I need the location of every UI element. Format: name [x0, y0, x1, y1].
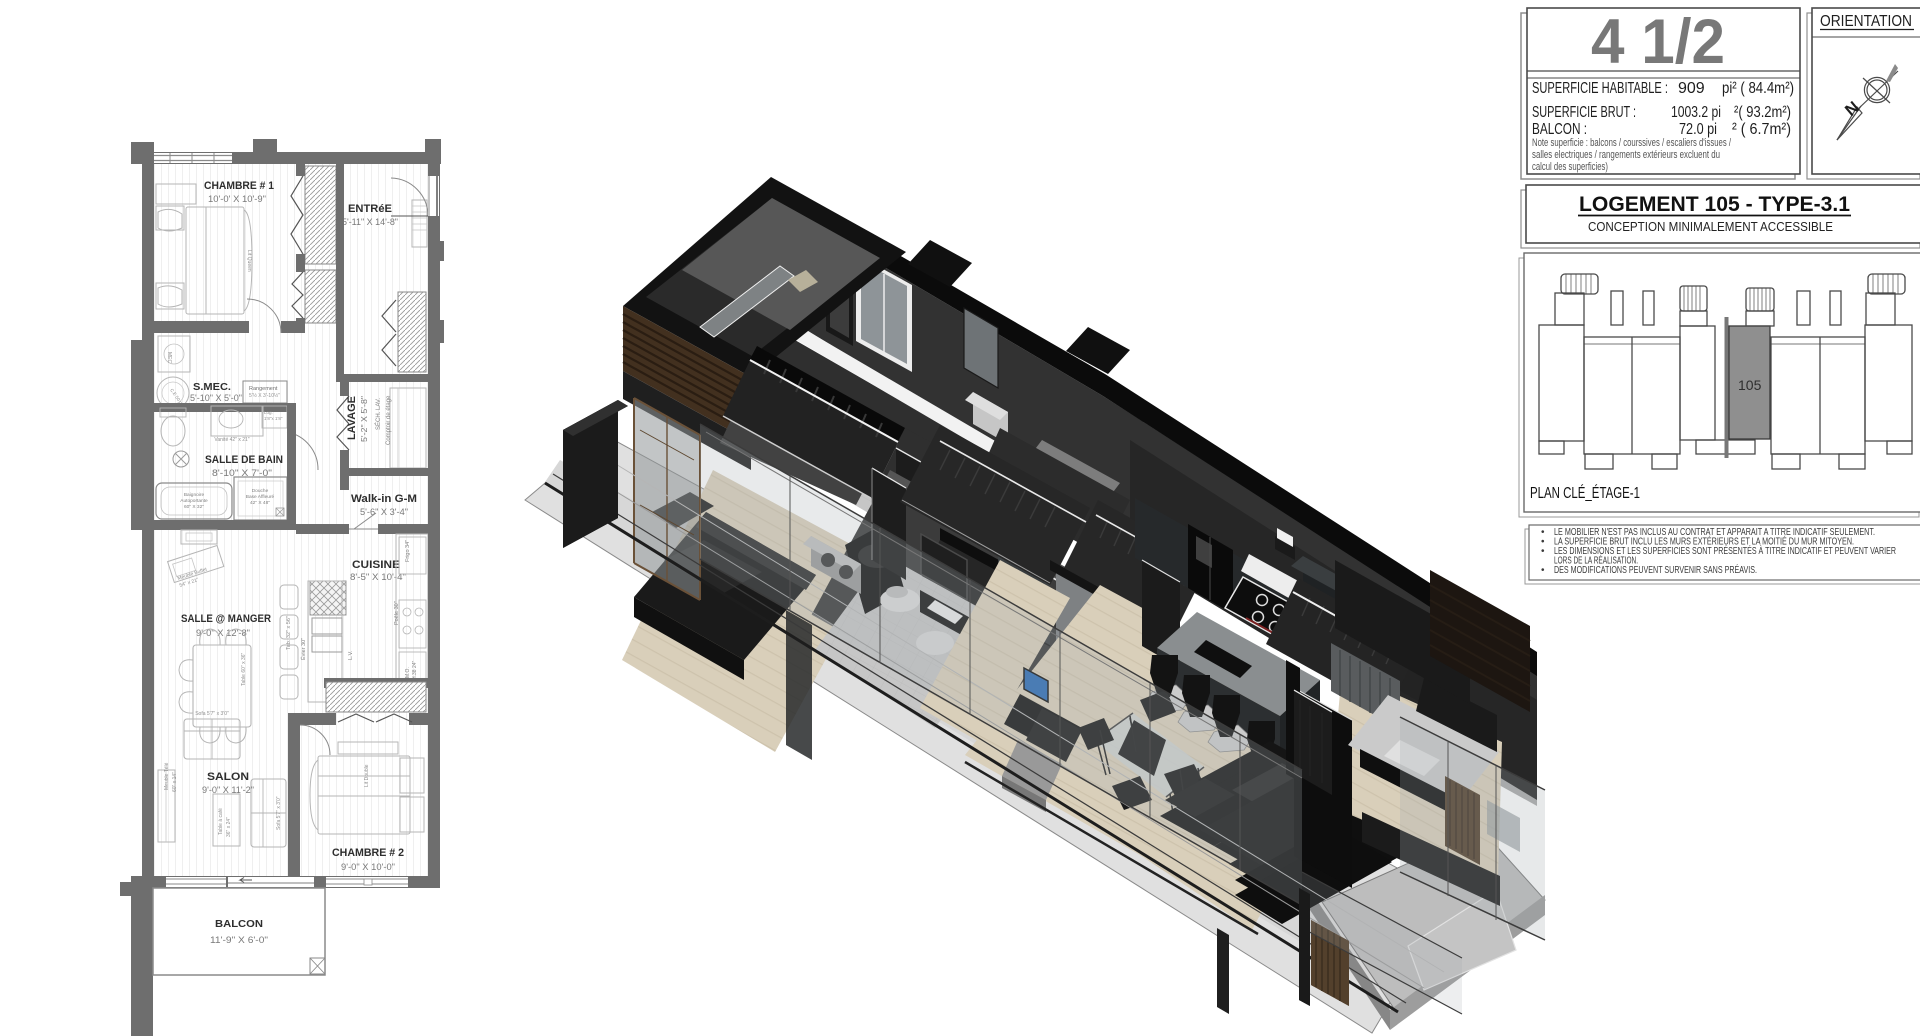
svg-text:Base Affleuré: Base Affleuré: [246, 494, 275, 500]
svg-text:5'-10" X 5'-0": 5'-10" X 5'-0": [190, 393, 242, 403]
svg-text:calcul des superficies): calcul des superficies): [1532, 161, 1608, 173]
svg-text:10'-0' X 10'-9": 10'-0' X 10'-9": [208, 194, 266, 204]
svg-text:72.0 pi: 72.0 pi: [1679, 121, 1717, 138]
svg-text:pi² ( 84.4m²): pi² ( 84.4m²): [1722, 80, 1794, 97]
svg-text:105: 105: [1738, 377, 1762, 393]
svg-text:Frigo 34": Frigo 34": [405, 540, 411, 562]
svg-text:5'-11" X 14'-8": 5'-11" X 14'-8": [342, 217, 398, 227]
svg-text:8'-5" X 10'-4": 8'-5" X 10'-4": [350, 572, 406, 582]
svg-text:BALCON: BALCON: [215, 919, 263, 930]
svg-text:Meuble Télé: Meuble Télé: [164, 762, 170, 790]
svg-text:60" X 32": 60" X 32": [184, 504, 204, 510]
svg-text:CHAMBRE # 2: CHAMBRE # 2: [332, 847, 404, 859]
svg-text:S.MEC.: S.MEC.: [193, 382, 231, 393]
svg-text:5'-2" X 5'-8": 5'-2" X 5'-8": [359, 396, 369, 442]
svg-text:909: 909: [1678, 80, 1705, 97]
svg-text:BALCON :: BALCON :: [1532, 121, 1587, 138]
svg-text:ENTRéE: ENTRéE: [348, 203, 392, 215]
svg-text:PLAN CLÉ_ÉTAGE-1: PLAN CLÉ_ÉTAGE-1: [1530, 485, 1640, 502]
svg-text:Sofa 5'7" x 3'0": Sofa 5'7" x 3'0": [195, 711, 229, 717]
svg-text:Vanité 42" x 21": Vanité 42" x 21": [214, 437, 249, 443]
svg-text:•: •: [1541, 565, 1545, 576]
svg-text:Walk-in G-M: Walk-in G-M: [351, 493, 417, 505]
svg-text:ORIENTATION: ORIENTATION: [1820, 13, 1912, 30]
svg-text:Log.: Log.: [264, 410, 273, 415]
svg-text:Autoportante: Autoportante: [180, 498, 208, 504]
svg-text:LOGEMENT 105 - TYPE-3.1: LOGEMENT 105 - TYPE-3.1: [1579, 193, 1850, 216]
svg-text:36" x 24": 36" x 24": [226, 817, 232, 837]
svg-text:salles electriques / rangement: salles electriques / rangements extérieu…: [1532, 149, 1720, 161]
svg-text:Lit Double: Lit Double: [364, 764, 370, 787]
svg-text:5'-6" X 3'-4": 5'-6" X 3'-4": [360, 507, 408, 517]
svg-text:DES MODIFICATIONS PEUVENT SURV: DES MODIFICATIONS PEUVENT SURVENIR SANS …: [1554, 563, 1757, 576]
svg-text:Lit Queen: Lit Queen: [246, 250, 252, 272]
svg-text:Tab. 32" x 56": Tab. 32" x 56": [286, 616, 292, 650]
svg-text:Sofa 5'7" x 3'0": Sofa 5'7" x 3'0": [276, 796, 282, 830]
svg-text:11'-9" X 6'-0": 11'-9" X 6'-0": [210, 935, 268, 945]
svg-text:Rangement: Rangement: [249, 386, 278, 392]
svg-text:LAVAGE: LAVAGE: [346, 396, 358, 440]
svg-text:Évier 30": Évier 30": [300, 638, 307, 660]
svg-text:9'-0" X 12'-8": 9'-0" X 12'-8": [196, 628, 250, 638]
svg-text:Comptoir de étage: Comptoir de étage: [386, 395, 392, 445]
svg-text:²( 93.2m²): ²( 93.2m²): [1734, 104, 1791, 121]
svg-text:1'8"x 1'8": 1'8"x 1'8": [264, 416, 283, 421]
svg-text:Douche: Douche: [252, 488, 269, 494]
svg-text:9'-0" X 11'-2": 9'-0" X 11'-2": [202, 785, 254, 795]
svg-text:SÉCH. LAV.: SÉCH. LAV.: [375, 398, 382, 430]
svg-text:SALLE @ MANGER: SALLE @ MANGER: [181, 613, 271, 625]
svg-text:SALON: SALON: [207, 771, 249, 783]
svg-text:L.V.: L.V.: [348, 650, 354, 660]
svg-text:4 1/2: 4 1/2: [1591, 7, 1725, 77]
svg-text:SUPERFICIE BRUT :: SUPERFICIE BRUT :: [1532, 104, 1636, 121]
svg-text:CONCEPTION MINIMALEMENT ACCESS: CONCEPTION MINIMALEMENT ACCESSIBLE: [1588, 220, 1833, 234]
svg-text:Table 60" x 36": Table 60" x 36": [241, 652, 247, 686]
svg-text:H.38 24": H.38 24": [412, 660, 418, 680]
svg-text:Poêle 30": Poêle 30": [394, 601, 400, 625]
svg-text:Note superficie : balcons / co: Note superficie : balcons / courssives /…: [1532, 137, 1732, 149]
svg-text:CUISINE: CUISINE: [352, 559, 400, 571]
svg-text:•: •: [1541, 546, 1545, 557]
svg-text:5'½ X 3'-10½": 5'½ X 3'-10½": [249, 392, 280, 399]
svg-text:SALLE DE BAIN: SALLE DE BAIN: [205, 454, 283, 466]
svg-text:M.O.: M.O.: [405, 667, 411, 678]
svg-text:Table à café: Table à café: [218, 808, 224, 835]
svg-text:Baignoire: Baignoire: [184, 492, 205, 498]
svg-text:SUPERFICIE HABITABLE :: SUPERFICIE HABITABLE :: [1532, 80, 1668, 97]
svg-text:CHAMBRE # 1: CHAMBRE # 1: [204, 180, 274, 192]
svg-text:42" X 48": 42" X 48": [250, 500, 270, 506]
svg-text:9'-0" X 10'-0": 9'-0" X 10'-0": [341, 862, 395, 872]
svg-text:1003.2 pi: 1003.2 pi: [1671, 104, 1721, 121]
svg-text:MEC: MEC: [166, 352, 172, 364]
svg-text:² ( 6.7m²): ² ( 6.7m²): [1732, 121, 1791, 138]
svg-text:60" x 14": 60" x 14": [172, 772, 178, 792]
